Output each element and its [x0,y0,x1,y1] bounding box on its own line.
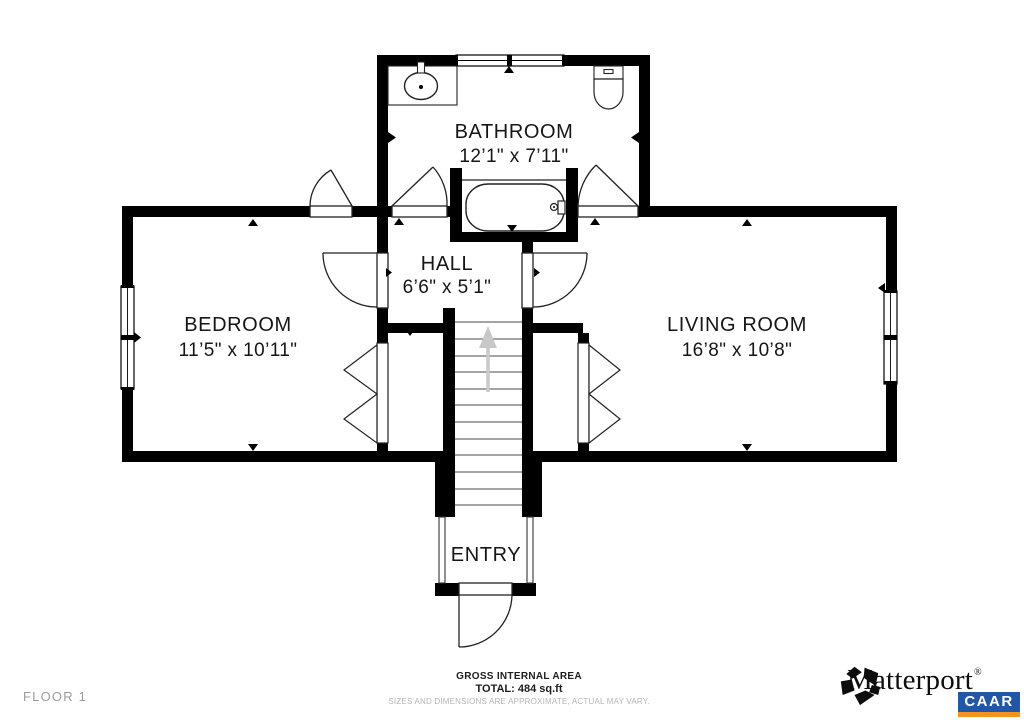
stairs-up-arrow-icon [479,326,497,392]
marker-right-icon [134,332,141,343]
floor-plan-svg: BATHROOM 12’1" x 7’11" HALL 6’6" x 5’1" … [0,0,1024,723]
wall [639,55,650,217]
bedroom-label: BEDROOM [184,314,292,336]
matterport-pinwheel-icon [839,664,881,706]
hall-bedroom-door [323,253,388,308]
registered-trademark-icon: ® [974,667,982,678]
wall [522,323,583,333]
stairs [455,322,522,505]
wall [122,206,133,287]
wall [435,583,459,596]
area-total: TOTAL: 484 sq.ft [339,683,699,695]
wall [377,55,388,217]
wall [522,451,542,517]
wall [578,333,589,343]
marker-down-icon [742,444,752,451]
wall [377,443,388,452]
hall-living-room-door [522,253,587,308]
hall-dimensions: 6’6" x 5’1" [403,277,492,298]
wall [566,168,578,242]
marker-up-icon [248,219,258,226]
bathroom-right-door [578,165,638,217]
wall [522,451,897,462]
wall [122,451,455,462]
wall [435,451,455,517]
living-room-window [884,290,897,384]
marker-right-icon [534,268,540,277]
floor-plan-page: BATHROOM 12’1" x 7’11" HALL 6’6" x 5’1" … [0,0,1024,723]
gross-internal-area-block: GROSS INTERNAL AREA TOTAL: 484 sq.ft SIZ… [339,671,699,706]
wall [450,168,462,242]
hall-label: HALL [421,253,473,275]
closet-doors [344,343,620,443]
marker-up-icon [742,219,752,226]
bathroom-dimensions: 12’1" x 7’11" [459,146,568,167]
toilet-icon [594,66,623,109]
area-disclaimer: SIZES AND DIMENSIONS ARE APPROXIMATE, AC… [339,697,699,706]
marker-right-icon [386,268,392,277]
wall [522,242,533,253]
marker-up-icon [504,66,514,73]
wall [562,55,650,66]
caar-badge: CAAR [956,690,1022,719]
wall [122,206,310,217]
bathroom-window [455,55,565,66]
bedroom-exterior-door [310,170,352,217]
wall [450,232,578,242]
floor-number-label: FLOOR 1 [23,689,87,704]
living-room-closet-bifold-door [578,343,620,443]
wall [512,583,536,596]
bathroom-left-door [392,167,447,217]
living-room-dimensions: 16’8" x 10’8" [682,340,793,361]
bathroom-label: BATHROOM [455,121,574,143]
wall [578,443,589,452]
wall [886,206,897,292]
entry-label: ENTRY [451,544,521,566]
bedroom-dimensions: 11’5" x 10’11" [179,340,298,361]
wall [352,206,392,217]
bathtub-icon [462,180,566,231]
marker-left-icon [631,132,639,143]
marker-left-icon [878,283,885,293]
marker-down-icon [248,444,258,451]
wall [886,383,897,462]
living-room-label: LIVING ROOM [667,314,807,336]
bedroom-closet-bifold-door [344,343,388,443]
marker-up-icon [590,218,600,225]
area-heading: GROSS INTERNAL AREA [339,671,699,682]
marker-right-icon [388,132,396,143]
caar-badge-orange-strip [958,712,1020,717]
wall [638,206,897,217]
wall [122,388,133,462]
wall [443,308,455,452]
bedroom-window [121,285,134,390]
wall [377,217,388,253]
caar-badge-text: CAAR [958,692,1020,712]
marker-up-icon [394,218,404,225]
sink-icon [388,62,457,105]
entry-exterior-door [459,583,512,647]
